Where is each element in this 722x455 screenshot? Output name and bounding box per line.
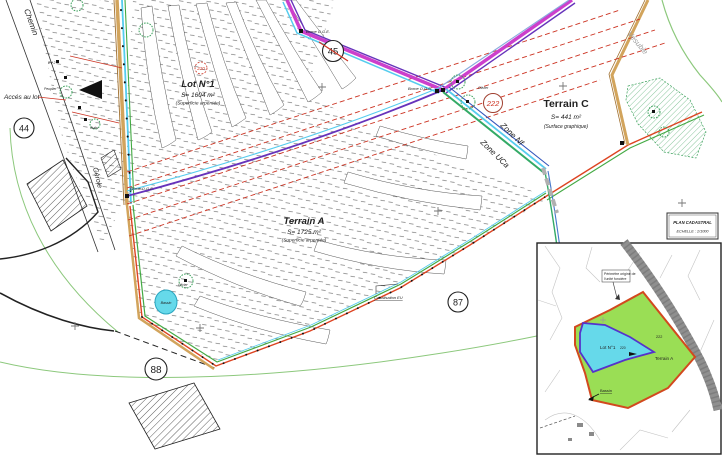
inset-note-line1: Périmètre origine de [604,272,636,276]
terrain-a-note: (Superficie arpentée) [282,238,327,244]
survey-plan-canvas: 44 45 222 87 88 220 Chemin Accés au lot … [0,0,722,455]
title-echelle: ECHELLE : 1/1000 [676,230,709,234]
lot1-name: Lot N°1 [181,79,214,90]
utility-box [56,60,59,63]
vegetation-patch [626,78,706,158]
terrain-a-area: S= 1725 m² [287,229,322,236]
wall-curve [0,293,114,331]
borne-square [620,141,624,145]
peuplier-label: Peuplier [44,87,57,91]
tree-center-dot [184,279,187,282]
circle-222-label: 222 [486,99,500,108]
title-plan-cadastral: PLAN CADASTRAL [673,220,712,225]
inset-note-line2: l'unité foncière [604,277,627,281]
circle-87-label: 87 [453,298,463,308]
utility-box [84,118,87,121]
olivier-right-label: Olivier [478,86,489,90]
terraced-slopes [35,0,545,362]
inset-terrain-a-number: 222 [656,335,662,339]
puits-label: Puits [90,126,98,130]
borne-oge-left-label: Borne O.G.E. [130,186,154,191]
terrain-a-name: Terrain A [283,216,324,227]
inset-building [568,438,572,441]
borne-square [299,29,303,33]
title-box-outer [667,213,718,239]
inset-lot1-label: Lot N°1 [600,345,616,350]
terrain-c-area: S= 441 m² [551,114,582,121]
inset-map: Périmètre origine de l'unité foncière Lo… [537,242,721,454]
lot1-area: S= 1604 m² [181,92,216,99]
tree-center-dot [456,80,459,83]
borne-square [125,194,129,198]
borne-oge-top-label: Borne O.G.E. [306,29,330,34]
inset-bassin-label: Bassin [600,388,612,393]
olivier-left-label: Olivier [178,283,188,287]
hatched-area [129,383,220,449]
canalisation-label: Canalisation EU [374,295,403,300]
inset-lot1-number: 220 [620,346,626,350]
utility-box [64,76,67,79]
borne-square [435,89,439,93]
borne-ogb-label: Borne O.G.B. [408,86,432,91]
tree-center-dot [466,100,469,103]
terrain-c-name: Terrain C [543,98,589,110]
acces-label: Accés au lot [3,94,41,101]
circle-88-label: 88 [150,365,162,376]
bassin-label: Bassin [161,301,172,305]
terrain-c-note: (Surface graphique) [544,124,589,130]
inset-building [577,423,583,427]
lot1-note: (Superficie arpentée) [176,101,221,107]
inset-terrain-a-label: Terrain A [655,356,674,361]
ev2-label: EV 2 [48,61,55,65]
circle-220-label: 220 [196,66,205,71]
circle-44-label: 44 [19,124,29,134]
magenta-blue-edge-right [440,0,569,87]
tree-center-dot [652,110,655,113]
plus-mark [559,82,567,90]
survey-plan: 44 45 222 87 88 220 Chemin Accés au lot … [0,0,722,455]
inset-building [589,432,594,436]
utility-box [78,106,81,109]
plus-mark [678,199,686,207]
title-box: PLAN CADASTRAL ECHELLE : 1/1000 [667,213,718,239]
borne-square [441,88,445,92]
